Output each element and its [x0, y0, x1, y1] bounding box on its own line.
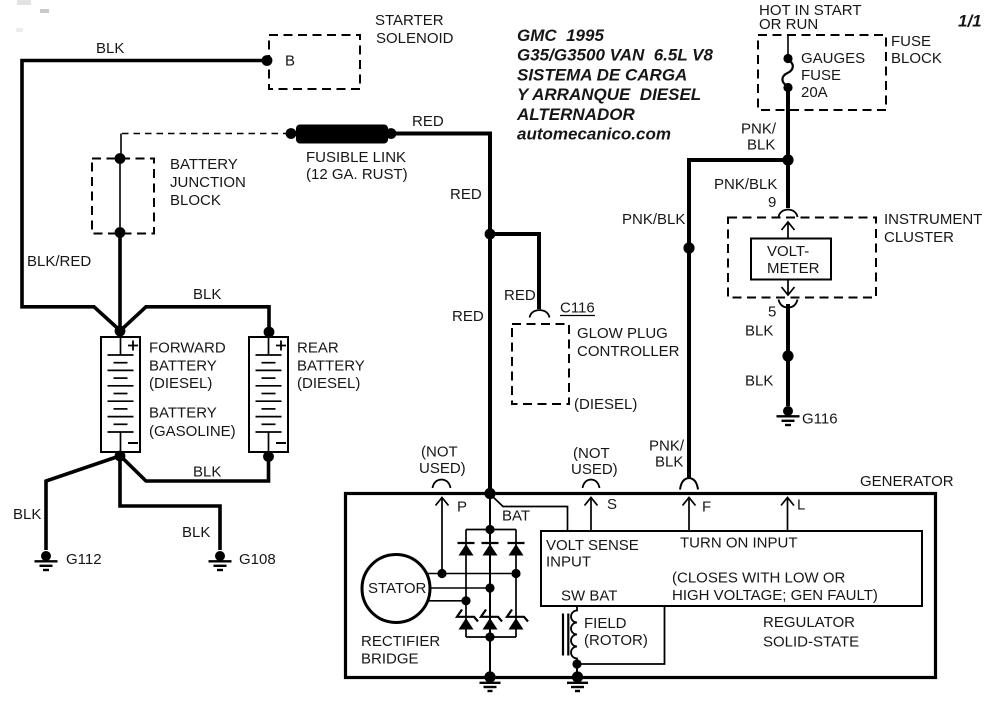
svg-text:SOLID-STATE: SOLID-STATE — [763, 634, 859, 651]
svg-text:CLUSTER: CLUSTER — [884, 229, 954, 246]
svg-text:BLK: BLK — [655, 454, 683, 471]
svg-text:VOLT SENSE: VOLT SENSE — [546, 537, 639, 554]
svg-text:(GASOLINE): (GASOLINE) — [149, 423, 236, 440]
svg-text:PNK/BLK: PNK/BLK — [622, 211, 685, 228]
svg-text:B: B — [285, 53, 295, 70]
svg-text:ALTERNADOR: ALTERNADOR — [516, 105, 635, 124]
svg-text:BATTERY: BATTERY — [149, 405, 217, 422]
svg-text:OR RUN: OR RUN — [759, 16, 818, 33]
svg-text:CONTROLLER: CONTROLLER — [577, 343, 680, 360]
svg-text:1/1: 1/1 — [958, 12, 982, 31]
svg-text:(DIESEL): (DIESEL) — [149, 375, 212, 392]
svg-text:JUNCTION: JUNCTION — [170, 174, 246, 191]
svg-text:G112: G112 — [66, 551, 102, 568]
svg-text:G116: G116 — [802, 411, 838, 428]
svg-text:RED: RED — [452, 308, 484, 325]
svg-text:BLK: BLK — [193, 286, 221, 303]
svg-text:(DIESEL): (DIESEL) — [297, 375, 360, 392]
svg-text:20A: 20A — [801, 84, 828, 101]
svg-text:FUSE: FUSE — [801, 67, 841, 84]
svg-text:TURN ON INPUT: TURN ON INPUT — [680, 535, 798, 552]
svg-text:SISTEMA DE CARGA: SISTEMA DE CARGA — [517, 65, 687, 84]
svg-text:(CLOSES WITH LOW OR: (CLOSES WITH LOW OR — [672, 570, 846, 587]
svg-text:G35/G3500 VAN 6.5L V8: G35/G3500 VAN 6.5L V8 — [517, 46, 713, 65]
svg-text:GMC 1995: GMC 1995 — [517, 26, 604, 45]
svg-text:BLOCK: BLOCK — [170, 192, 221, 209]
svg-text:STATOR: STATOR — [368, 580, 427, 597]
svg-text:RECTIFIER: RECTIFIER — [361, 633, 440, 650]
svg-text:(12 GA. RUST): (12 GA. RUST) — [306, 166, 408, 183]
svg-text:INPUT: INPUT — [546, 554, 591, 571]
svg-text:BLK: BLK — [745, 373, 773, 390]
svg-text:9: 9 — [768, 194, 776, 211]
svg-text:BLK: BLK — [13, 506, 41, 523]
svg-text:BATTERY: BATTERY — [297, 358, 365, 375]
svg-text:FUSE: FUSE — [891, 33, 931, 50]
svg-text:REGULATOR: REGULATOR — [763, 614, 855, 631]
svg-text:GENERATOR: GENERATOR — [860, 473, 954, 490]
svg-text:GLOW PLUG: GLOW PLUG — [577, 325, 668, 342]
svg-text:FIELD: FIELD — [584, 615, 627, 632]
svg-text:FORWARD: FORWARD — [149, 340, 226, 357]
svg-text:HIGH VOLTAGE; GEN FAULT): HIGH VOLTAGE; GEN FAULT) — [672, 587, 878, 604]
svg-text:USED): USED) — [571, 461, 618, 478]
svg-text:PNK/BLK: PNK/BLK — [714, 176, 777, 193]
svg-text:BLK: BLK — [193, 464, 221, 481]
svg-text:5: 5 — [768, 304, 776, 321]
svg-text:SW BAT: SW BAT — [561, 588, 617, 605]
svg-text:BATTERY: BATTERY — [170, 156, 238, 173]
svg-text:BLK: BLK — [745, 323, 773, 340]
svg-text:BATTERY: BATTERY — [149, 358, 217, 375]
svg-text:RED: RED — [504, 287, 536, 304]
svg-text:F: F — [702, 499, 711, 516]
svg-text:(DIESEL): (DIESEL) — [574, 396, 637, 413]
svg-text:L: L — [797, 497, 805, 514]
svg-text:PNK/: PNK/ — [741, 121, 777, 138]
svg-text:VOLT-: VOLT- — [767, 243, 809, 260]
svg-text:METER: METER — [767, 260, 820, 277]
svg-text:BRIDGE: BRIDGE — [361, 651, 419, 668]
svg-text:BLK/RED: BLK/RED — [27, 253, 91, 270]
svg-text:PNK/: PNK/ — [649, 438, 685, 455]
svg-text:S: S — [607, 496, 617, 513]
svg-text:BLOCK: BLOCK — [891, 50, 942, 67]
svg-text:RED: RED — [450, 186, 482, 203]
svg-text:BLK: BLK — [747, 137, 775, 154]
svg-text:FUSIBLE LINK: FUSIBLE LINK — [306, 149, 406, 166]
svg-text:REAR: REAR — [297, 340, 339, 357]
svg-text:automecanico.com: automecanico.com — [517, 124, 671, 143]
svg-text:P: P — [457, 499, 467, 516]
svg-text:RED: RED — [412, 113, 444, 130]
svg-text:STARTER: STARTER — [375, 12, 444, 29]
svg-text:SOLENOID: SOLENOID — [376, 30, 454, 47]
svg-text:(NOT: (NOT — [573, 445, 610, 462]
svg-text:C116: C116 — [560, 300, 595, 317]
svg-text:INSTRUMENT: INSTRUMENT — [884, 211, 982, 228]
svg-text:Y ARRANQUE DIESEL: Y ARRANQUE DIESEL — [517, 85, 701, 104]
svg-text:GAUGES: GAUGES — [801, 50, 865, 67]
svg-text:BLK: BLK — [182, 524, 210, 541]
svg-text:(NOT: (NOT — [421, 444, 458, 461]
svg-text:BLK: BLK — [96, 40, 124, 57]
svg-text:(ROTOR): (ROTOR) — [584, 632, 648, 649]
svg-text:G108: G108 — [239, 551, 276, 568]
svg-text:USED): USED) — [419, 460, 466, 477]
svg-text:BAT: BAT — [502, 508, 530, 525]
